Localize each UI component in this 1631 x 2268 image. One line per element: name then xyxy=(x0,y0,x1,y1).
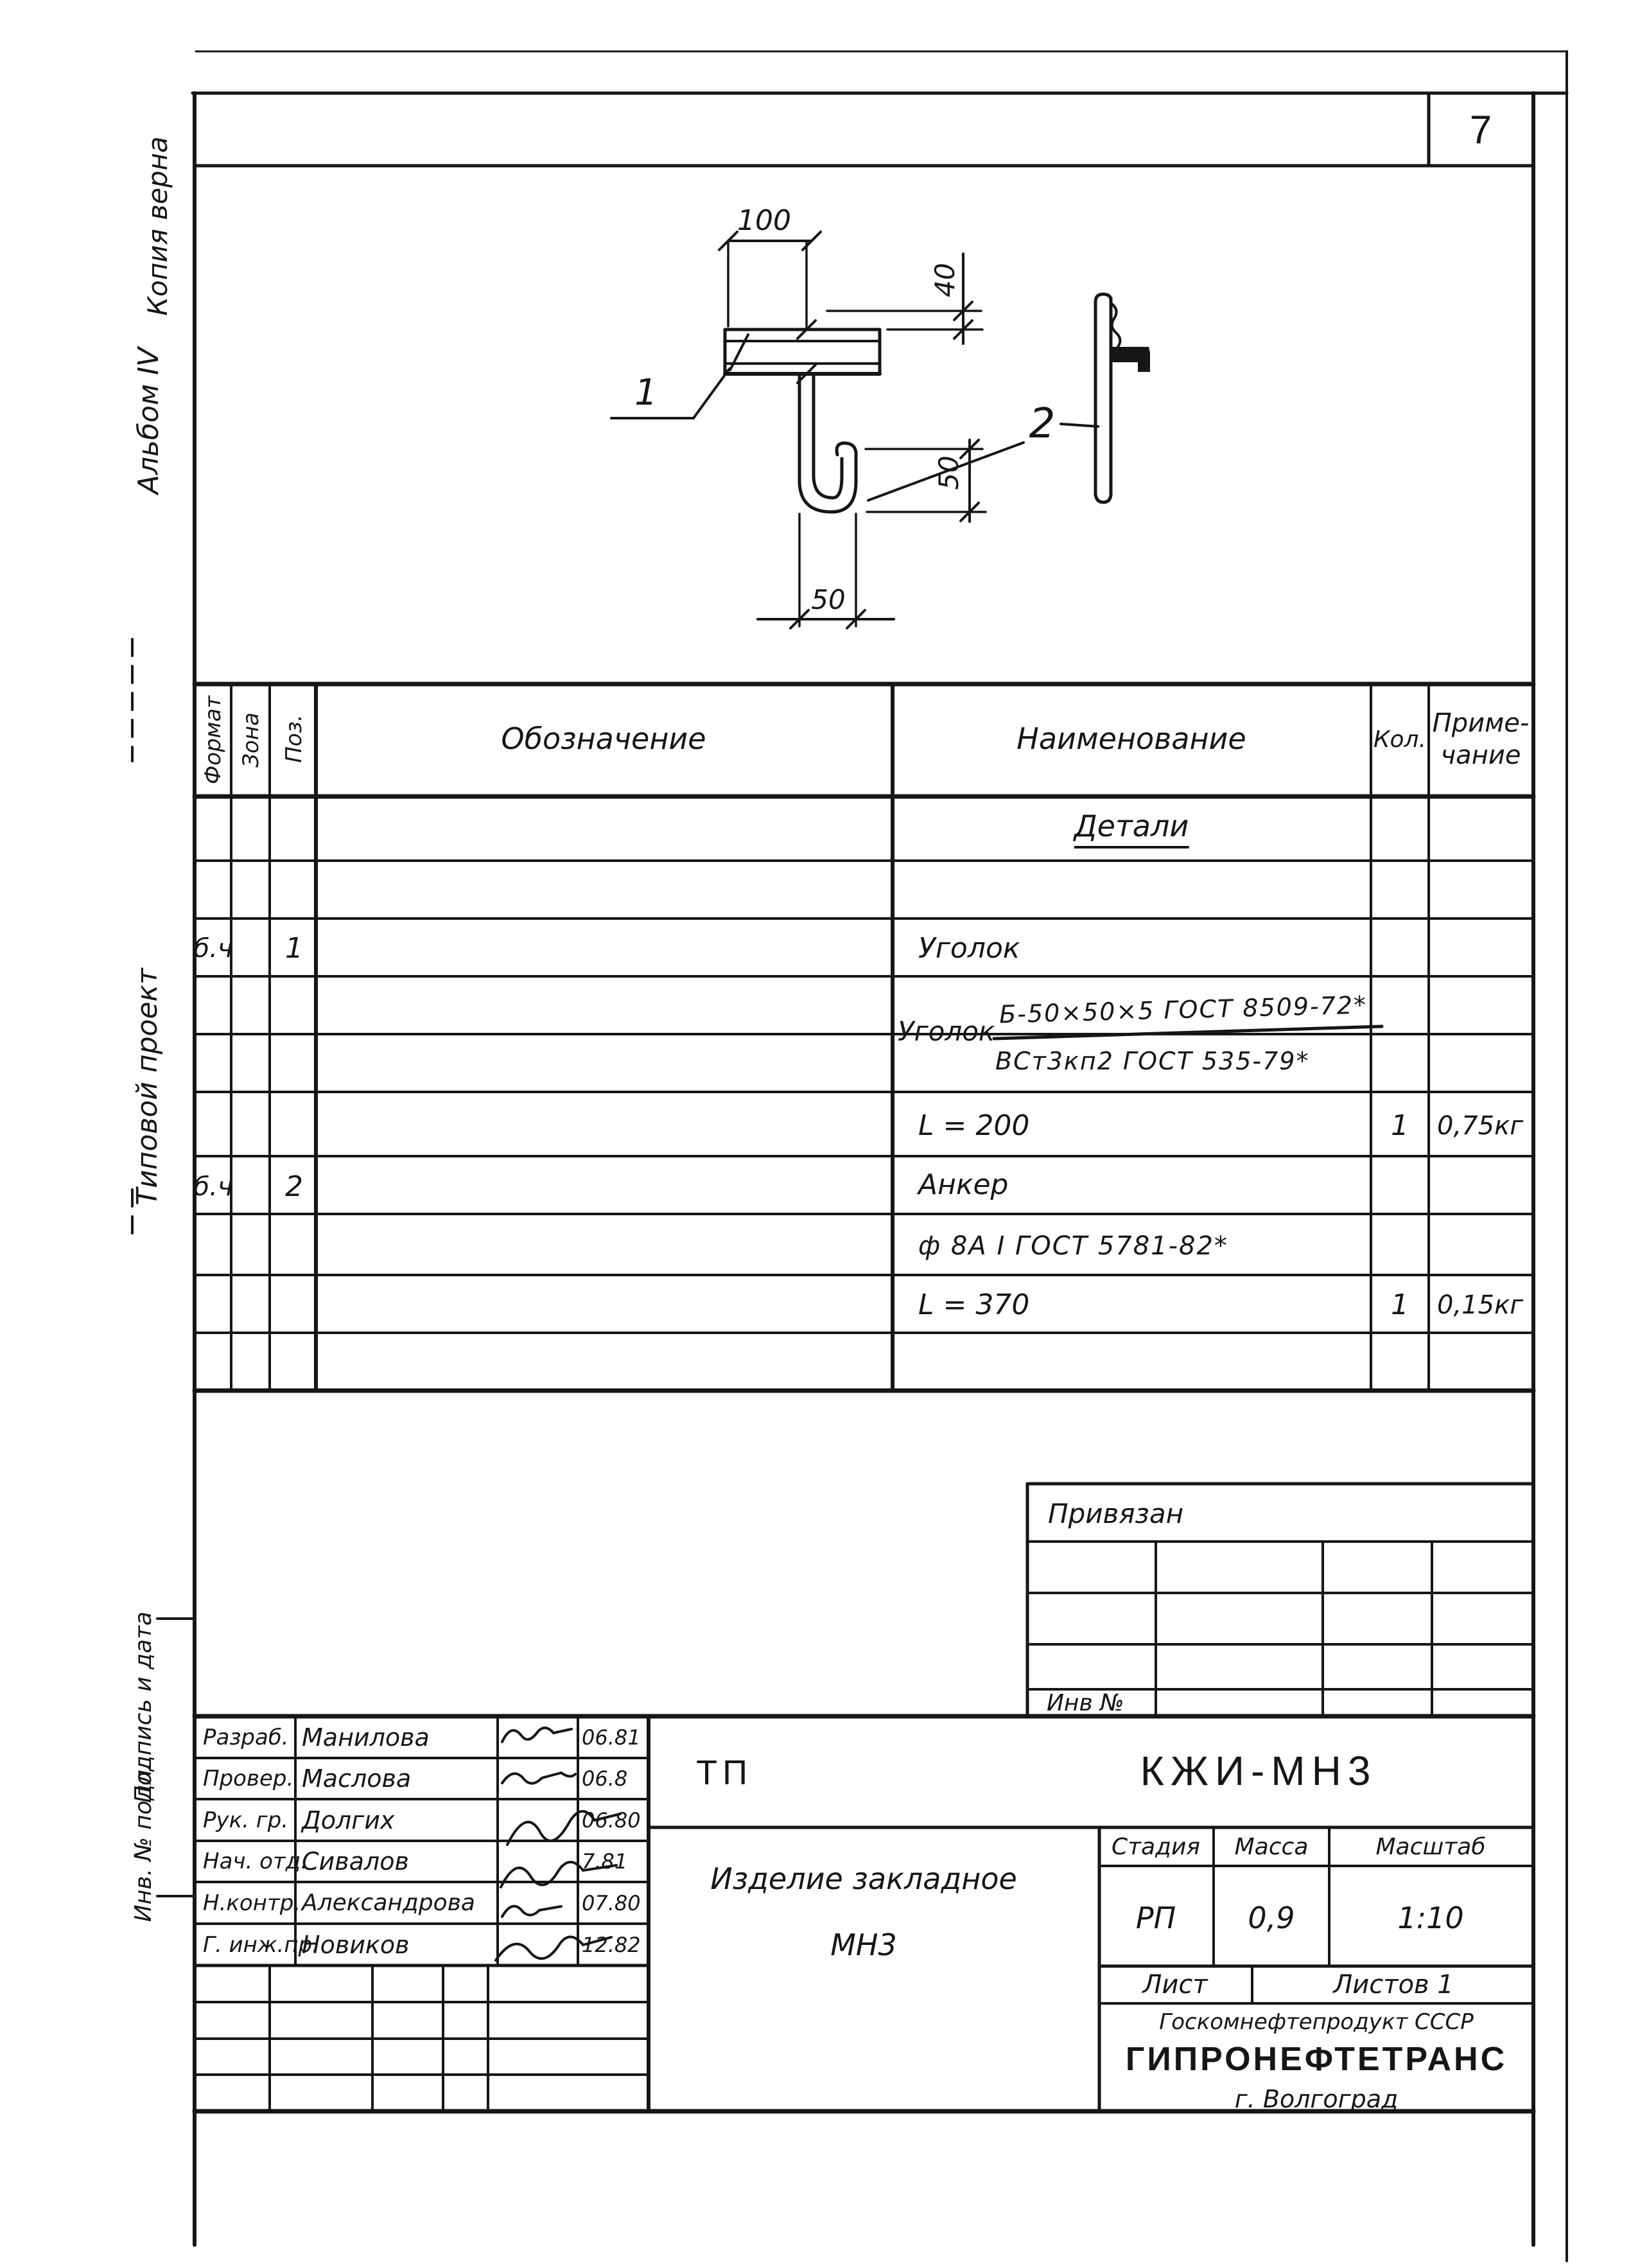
part1-leader xyxy=(611,369,729,418)
spec-row3-qty: 1 xyxy=(1391,1112,1409,1140)
sig-role-3: Рук. гр. xyxy=(203,1809,288,1831)
sig-date-5: 07.80 xyxy=(582,1893,641,1913)
spec-row4-name: Анкер xyxy=(918,1171,1008,1199)
sig-name-6: Новиков xyxy=(302,1933,410,1957)
part-label-1: 1 xyxy=(634,375,658,411)
signature-icon xyxy=(502,1906,561,1917)
signature-scribbles xyxy=(496,1728,620,1960)
dim-50-bottom-label: 50 xyxy=(811,586,845,613)
spec-header-zone: Зона xyxy=(240,712,262,768)
title-doc-number: КЖИ-МН3 xyxy=(1140,1750,1377,1791)
spec-row5-name: ф 8А I ГОСТ 5781-82* xyxy=(918,1233,1228,1259)
spec-row1-pos: 1 xyxy=(285,935,303,963)
margin-label-inventory-no: Инв. № подл. xyxy=(132,1763,155,1922)
spec-row3-note: 0,75кг xyxy=(1437,1113,1523,1139)
spec-header-note-line2: чание xyxy=(1441,743,1521,768)
signature-icon xyxy=(502,1773,575,1784)
sig-date-2: 06.8 xyxy=(582,1768,627,1789)
mass-header: Масса xyxy=(1235,1836,1309,1859)
blueprint-sheet: { "page": { "number": "7" }, "margin": {… xyxy=(0,0,1631,2268)
spec-table-grid xyxy=(195,684,1533,1391)
org-name-line3: г. Волгоград xyxy=(1235,2087,1399,2111)
part2-leader xyxy=(868,424,1098,500)
binding-table-title: Привязан xyxy=(1048,1500,1183,1527)
spec-header-designation: Обозначение xyxy=(501,724,706,753)
angle-plate xyxy=(725,321,880,383)
spec-header-qty: Кол. xyxy=(1374,728,1426,752)
binding-table-inv-label: Инв № xyxy=(1047,1692,1124,1715)
sig-name-2: Маслова xyxy=(302,1766,411,1791)
spec-row4-format: б.ч xyxy=(193,1174,232,1200)
dim-40-label: 40 xyxy=(932,263,959,297)
scale-value: 1:10 xyxy=(1397,1903,1463,1933)
margin-label-album: Альбом IV xyxy=(135,347,163,494)
part-label-2: 2 xyxy=(1029,403,1056,444)
sig-role-1: Разраб. xyxy=(203,1727,289,1748)
title-code: ТП xyxy=(696,1755,753,1790)
title-product-name-line2: МН3 xyxy=(830,1930,897,1960)
stage-value: РП xyxy=(1136,1903,1176,1933)
spec-header-pos: Поз. xyxy=(283,714,305,762)
sig-name-4: Сивалов xyxy=(302,1849,409,1874)
page-number: 7 xyxy=(1470,110,1492,150)
dim-100-label: 100 xyxy=(737,207,791,235)
sheet-linework xyxy=(0,0,1631,2268)
sig-date-4: 7.81 xyxy=(582,1851,627,1872)
spec-row1-name: Уголок xyxy=(918,935,1020,963)
spec-row2-frac-label: Уголок xyxy=(898,1018,995,1045)
sig-role-5: Н.контр. xyxy=(203,1892,301,1914)
technical-drawing xyxy=(611,232,1150,628)
mass-value: 0,9 xyxy=(1248,1903,1295,1933)
spec-row3-name: L = 200 xyxy=(918,1112,1029,1140)
spec-row4-pos: 2 xyxy=(285,1173,303,1201)
spec-row2-frac-denominator: ВСт3кп2 ГОСТ 535-79* xyxy=(995,1049,1309,1073)
sig-role-4: Нач. отд. xyxy=(203,1850,308,1872)
margin-label-copy-note: Копия верна xyxy=(144,136,171,315)
spec-section-title: Детали xyxy=(1074,811,1189,848)
sig-date-3: 06.80 xyxy=(582,1810,641,1831)
spec-row6-name: L = 370 xyxy=(918,1291,1029,1319)
sig-role-2: Провер. xyxy=(203,1768,293,1789)
side-view xyxy=(1095,294,1150,502)
org-name-line1: Госкомнефтепродукт СССР xyxy=(1159,2011,1473,2033)
spec-header-note-line1: Приме- xyxy=(1433,710,1530,736)
spec-row6-note: 0,15кг xyxy=(1437,1292,1523,1318)
title-product-name-line1: Изделие закладное xyxy=(710,1864,1017,1894)
anchor-rod xyxy=(799,374,856,512)
stage-header: Стадия xyxy=(1112,1836,1200,1859)
sig-name-5: Александрова xyxy=(302,1892,475,1915)
org-name-line2: ГИПРОНЕФТЕТРАНС xyxy=(1126,2043,1507,2076)
spec-row6-qty: 1 xyxy=(1391,1291,1409,1319)
signature-icon xyxy=(502,1728,571,1742)
sheets-label: Листов 1 xyxy=(1333,1972,1454,1998)
scale-header: Масштаб xyxy=(1375,1836,1485,1859)
sig-name-1: Манилова xyxy=(302,1725,430,1750)
sig-date-1: 06.81 xyxy=(582,1727,641,1748)
margin-label-project-type: Типовой проект xyxy=(134,968,162,1206)
dim-50-middle-lines xyxy=(866,440,986,522)
spec-header-format: Формат xyxy=(202,696,224,784)
dim-50-middle-label: 50 xyxy=(936,455,963,489)
sig-date-6: 12.82 xyxy=(582,1935,641,1955)
dim-100-lines xyxy=(719,232,821,330)
sig-name-3: Долгих xyxy=(302,1808,394,1833)
spec-row1-format: б.ч xyxy=(193,936,232,962)
spec-header-name: Наименование xyxy=(1016,724,1246,753)
sheet-label: Лист xyxy=(1142,1972,1207,1998)
